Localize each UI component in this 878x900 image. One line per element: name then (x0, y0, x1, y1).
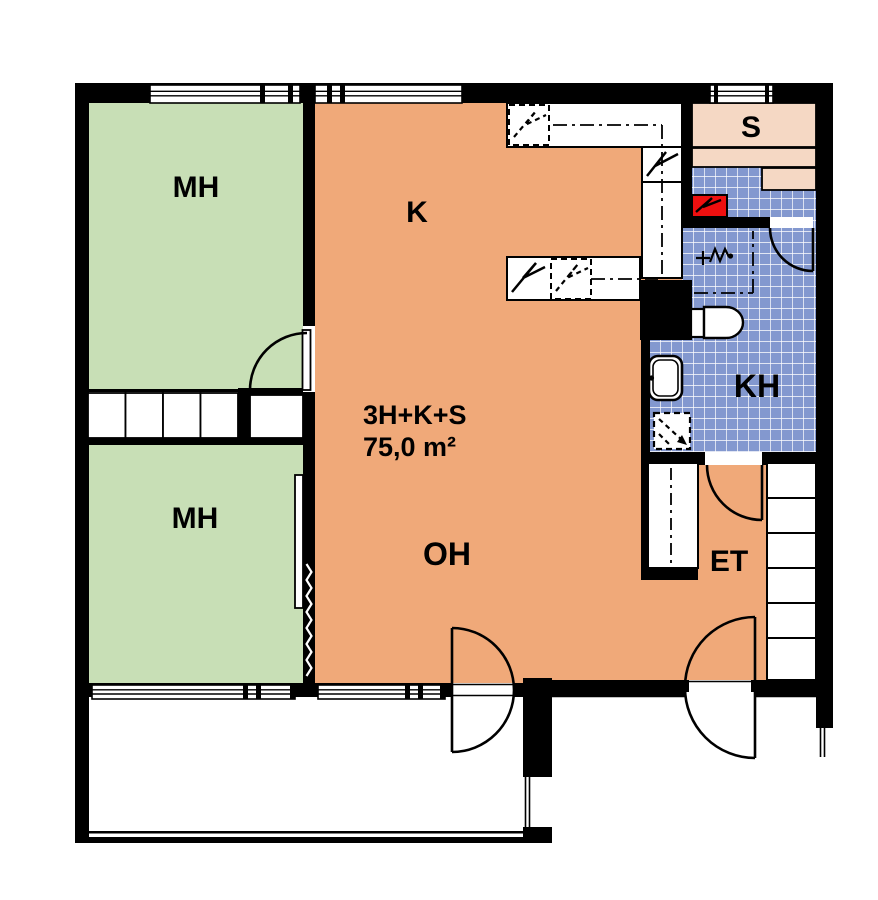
label-living-room: OH (423, 536, 471, 572)
wall-entry-divider (641, 465, 648, 580)
label-bathroom: KH (734, 368, 780, 404)
wall-closet-divider (238, 393, 250, 440)
wall-closet-bottom (89, 438, 315, 445)
window-bedroom2-bottom (92, 685, 295, 699)
window-bedroom1-top (150, 85, 300, 103)
sauna-heater (692, 195, 727, 217)
wall-kitchen-sauna (682, 83, 692, 228)
wardrobe-entry (648, 463, 698, 568)
wall-bathroom-left (641, 340, 650, 465)
balcony-pillar (523, 678, 552, 777)
closet-stack-entry (767, 463, 816, 680)
sauna-bench-step (762, 168, 816, 190)
sink (649, 356, 682, 400)
wall-kitchen-block (640, 280, 692, 340)
label-apartment-type: 3H+K+S (363, 400, 467, 430)
wall-sauna-bathroom (692, 217, 770, 228)
window-living-bottom (318, 685, 445, 699)
window-kitchen-top (315, 85, 462, 103)
label-sauna: S (741, 111, 761, 144)
dishwasher-reservation-icon (509, 105, 549, 145)
floor-plan: MH K S KH MH OH ET 3H+K+S 75,0 m² (0, 0, 878, 900)
label-bedroom1: MH (173, 171, 220, 204)
wall-right (816, 83, 833, 728)
window-sauna-top (710, 85, 773, 103)
closet-row-bedrooms (88, 393, 303, 438)
balcony-railing-outer-line (89, 837, 523, 843)
label-apartment-area: 75,0 m² (363, 432, 456, 462)
shower-icon (654, 413, 690, 449)
window-stairwell-right (816, 728, 833, 757)
sauna-bench-lower (692, 148, 816, 167)
bedroom2-floor (89, 445, 303, 683)
label-bedroom2: MH (172, 502, 219, 535)
label-kitchen: K (406, 196, 428, 229)
wall-wardrobe-bottom (641, 568, 698, 580)
label-entry-hall: ET (710, 545, 748, 578)
balcony-glass-panel (526, 777, 530, 827)
wall-left (75, 83, 89, 843)
appliance-reservation-icon (551, 259, 591, 299)
living-kitchen-floor (315, 103, 692, 683)
balcony-corner-block (523, 827, 552, 843)
wall-closet-top-line (89, 389, 238, 392)
toilet (691, 307, 743, 338)
balcony-railing-inner-line (89, 831, 523, 834)
